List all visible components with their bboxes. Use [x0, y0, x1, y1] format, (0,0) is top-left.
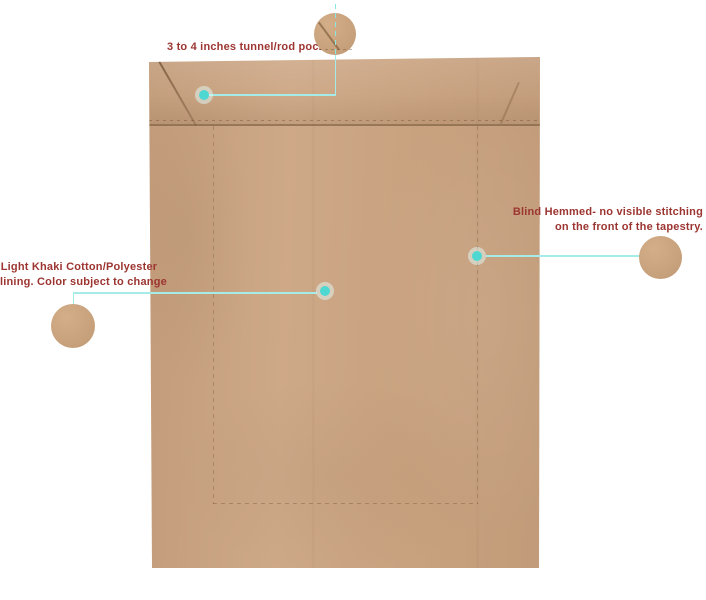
blind-hem-label-line2: on the front of the tapestry. [513, 220, 703, 235]
lining-label-line2: lining. Color subject to change [0, 275, 158, 290]
lining-connector-vertical [73, 293, 75, 304]
side-hem-stitch-left [213, 126, 214, 504]
lining-label-line1: Light Khaki Cotton/Polyester [0, 260, 158, 275]
hotspot-dot [472, 251, 482, 261]
hotspot-marker-lining [316, 282, 334, 300]
pocket-seam-stitching [149, 120, 540, 121]
bottom-hem-stitch [213, 503, 478, 504]
rod-pocket-connector-dashed [335, 4, 337, 55]
hotspot-marker-rod-pocket [195, 86, 213, 104]
swatch-fold-crease [318, 22, 339, 50]
blind-hem-label: Blind Hemmed- no visible stitching on th… [513, 205, 703, 235]
rod-pocket-connector-vertical [335, 54, 337, 95]
rod-pocket-connector-horizontal [208, 94, 336, 96]
hotspot-dot [320, 286, 330, 296]
rod-pocket-label: 3 to 4 inches tunnel/rod pocket. [167, 40, 338, 55]
blind-hem-connector-horizontal [486, 255, 640, 257]
lining-label: Light Khaki Cotton/Polyester lining. Col… [0, 260, 158, 290]
side-hem-stitch-right [477, 126, 478, 504]
lining-connector-horizontal [73, 292, 317, 294]
tapestry-back-panel [149, 57, 540, 568]
blind-hem-label-line1: Blind Hemmed- no visible stitching [513, 205, 703, 220]
blind-hem-detail-swatch [639, 236, 682, 279]
hotspot-marker-blind-hem [468, 247, 486, 265]
lining-detail-swatch [51, 304, 95, 348]
product-annotation-figure: 3 to 4 inches tunnel/rod pocket. Light K… [0, 0, 706, 600]
hotspot-dot [199, 90, 209, 100]
